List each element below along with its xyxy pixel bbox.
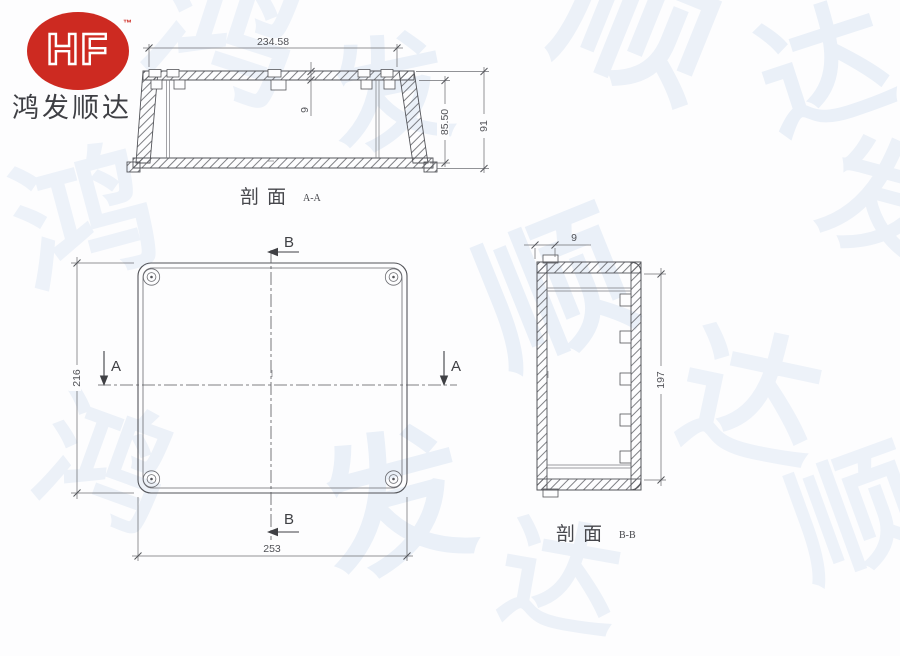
plan-outer-outline [138, 263, 407, 493]
section-marker-a-left: A [100, 351, 121, 386]
bb-boss [620, 294, 631, 306]
plan-corner-boss [385, 269, 401, 285]
aa-rim-notch [358, 70, 370, 78]
svg-text:85.50: 85.50 [439, 109, 451, 135]
logo: HF ™ 鸿发顺达 [0, 0, 170, 130]
bb-boss [620, 451, 631, 463]
logo-brand-text: HF [47, 25, 110, 75]
aa-dim-width: 234.58 [143, 36, 403, 67]
section-bb-view: 9 197 剖面 B-B [524, 232, 667, 545]
plan-dim-width: 253 [132, 497, 413, 561]
bb-boss [620, 373, 631, 385]
aa-boss [361, 80, 372, 89]
aa-boss [384, 80, 395, 89]
svg-text:A: A [111, 358, 121, 375]
hf-logo-mark: HF [27, 12, 129, 90]
section-marker-a-right: A [440, 351, 461, 386]
trademark-symbol: ™ [123, 18, 132, 28]
section-aa-view: 234.58 9 85.50 [127, 36, 490, 208]
plan-inner-outline [143, 268, 402, 488]
svg-text:216: 216 [71, 369, 83, 387]
aa-right-wall [399, 71, 428, 163]
svg-text:234.58: 234.58 [257, 36, 289, 48]
bb-section-label: 剖面 [556, 523, 610, 545]
aa-boss [271, 80, 286, 90]
aa-section-label-suffix: A-A [303, 193, 322, 204]
company-name: 鸿发顺达 [12, 86, 172, 125]
svg-text:197: 197 [655, 371, 667, 389]
aa-section-label: 剖面 [240, 186, 294, 208]
aa-dim-wall: 9 [299, 62, 315, 116]
svg-text:B: B [284, 511, 294, 528]
svg-text:9: 9 [571, 232, 577, 244]
svg-text:91: 91 [478, 120, 490, 132]
bb-boss [620, 414, 631, 426]
plan-corner-boss [143, 471, 159, 487]
section-marker-b-bottom: B [267, 511, 299, 536]
aa-boss [174, 80, 185, 89]
bb-boss [620, 331, 631, 343]
section-marker-b-top: B [267, 234, 299, 256]
bb-dim-inner-height: 197 [644, 268, 667, 486]
bb-right-wall [631, 262, 641, 490]
plan-view: B B A A 216 [69, 234, 461, 561]
aa-rim-notch [268, 70, 281, 78]
plan-corner-boss [143, 269, 159, 285]
aa-rim-notch [381, 70, 393, 78]
svg-text:253: 253 [263, 543, 281, 555]
plan-corner-boss [385, 471, 401, 487]
bb-top-wall [537, 262, 641, 273]
bb-section-label-suffix: B-B [619, 530, 636, 541]
svg-text:B: B [284, 234, 294, 251]
bb-left-wall [537, 262, 547, 490]
bb-bottom-wall [537, 479, 641, 490]
aa-bottom-wall [133, 158, 433, 168]
svg-text:A: A [451, 358, 461, 375]
svg-text:9: 9 [299, 107, 311, 113]
